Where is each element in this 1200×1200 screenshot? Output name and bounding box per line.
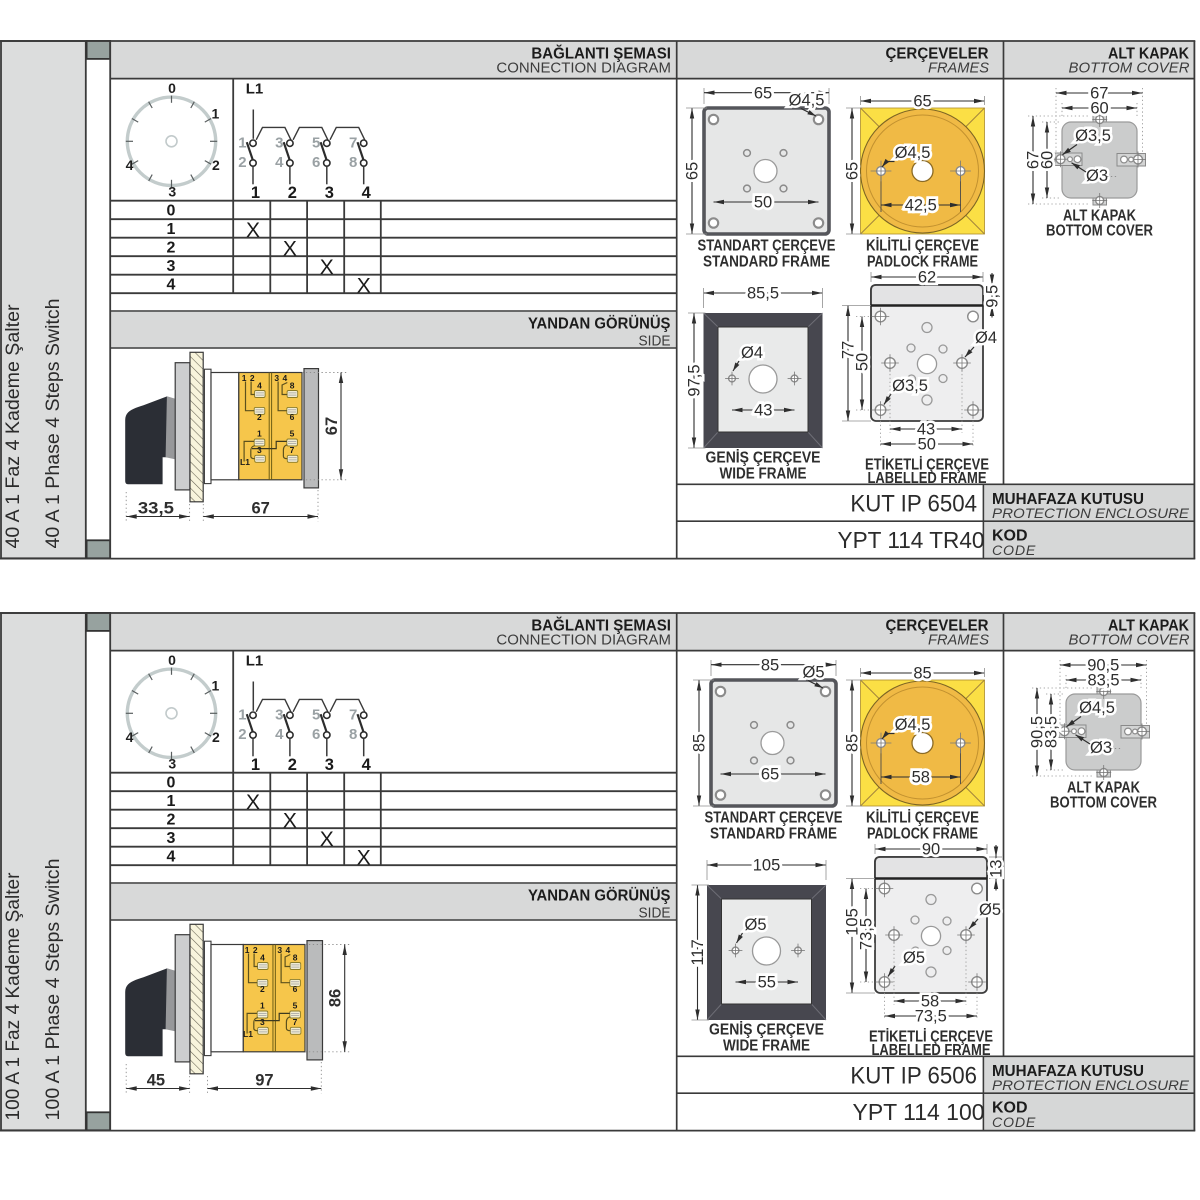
svg-text:83,5: 83,5 xyxy=(1043,716,1061,748)
svg-text:86: 86 xyxy=(327,989,345,1007)
svg-text:40 A 1 Faz 4 Kademe Şalter: 40 A 1 Faz 4 Kademe Şalter xyxy=(3,304,24,549)
svg-text:PROTECTION ENCLOSURE: PROTECTION ENCLOSURE xyxy=(992,1078,1190,1094)
svg-text:X: X xyxy=(283,238,297,261)
svg-text:97: 97 xyxy=(255,1072,273,1090)
svg-text:6: 6 xyxy=(312,726,320,743)
svg-text:Ø3: Ø3 xyxy=(1090,739,1112,757)
svg-text:FRAMES: FRAMES xyxy=(928,633,989,649)
svg-text:50: 50 xyxy=(854,353,872,371)
svg-text:3: 3 xyxy=(274,373,279,383)
svg-text:1: 1 xyxy=(260,1001,265,1011)
svg-text:105: 105 xyxy=(753,857,781,875)
svg-text:33,5: 33,5 xyxy=(138,500,174,518)
svg-text:3: 3 xyxy=(325,184,334,202)
svg-text:1: 1 xyxy=(242,373,247,383)
svg-text:1: 1 xyxy=(167,793,176,810)
svg-text:1: 1 xyxy=(257,429,262,439)
svg-text:3: 3 xyxy=(325,756,334,774)
svg-text:CODE: CODE xyxy=(992,1115,1036,1131)
svg-text:Ø5: Ø5 xyxy=(744,916,766,934)
svg-text:60: 60 xyxy=(1090,100,1108,118)
svg-text:4: 4 xyxy=(126,729,134,745)
svg-text:2: 2 xyxy=(288,184,297,202)
svg-text:5: 5 xyxy=(312,706,320,723)
svg-text:WIDE FRAME: WIDE FRAME xyxy=(723,1038,810,1055)
svg-text:50: 50 xyxy=(754,194,772,212)
svg-text:4: 4 xyxy=(362,184,372,202)
svg-text:BOTTOM COVER: BOTTOM COVER xyxy=(1069,633,1191,649)
svg-text:4: 4 xyxy=(283,373,288,383)
svg-text:STANDART ÇERÇEVE: STANDART ÇERÇEVE xyxy=(698,238,836,255)
svg-text:Ø4,5: Ø4,5 xyxy=(789,92,825,110)
svg-text:1: 1 xyxy=(251,184,260,202)
svg-text:CONNECTION DIAGRAM: CONNECTION DIAGRAM xyxy=(496,61,671,77)
svg-text:62: 62 xyxy=(918,269,936,287)
svg-text:5: 5 xyxy=(312,134,320,151)
svg-text:85: 85 xyxy=(691,734,709,752)
svg-text:2: 2 xyxy=(167,811,176,828)
svg-text:KUT IP 6506: KUT IP 6506 xyxy=(850,1063,977,1090)
svg-text:65: 65 xyxy=(913,93,931,111)
svg-text:YPT 114 100: YPT 114 100 xyxy=(853,1099,985,1125)
svg-text:2: 2 xyxy=(257,412,262,422)
svg-text:90: 90 xyxy=(922,841,940,859)
svg-text:7: 7 xyxy=(293,1017,298,1027)
svg-text:2: 2 xyxy=(212,729,220,745)
svg-text:PROTECTION ENCLOSURE: PROTECTION ENCLOSURE xyxy=(992,506,1190,522)
svg-text:7: 7 xyxy=(290,445,295,455)
svg-text:1: 1 xyxy=(238,134,246,151)
svg-text:0: 0 xyxy=(167,202,176,219)
svg-text:4: 4 xyxy=(275,726,284,743)
svg-text:4: 4 xyxy=(286,945,291,955)
svg-text:7: 7 xyxy=(349,706,357,723)
svg-text:85,5: 85,5 xyxy=(747,285,779,303)
svg-text:LABELLED FRAME: LABELLED FRAME xyxy=(872,1042,991,1059)
svg-text:3: 3 xyxy=(275,134,283,151)
svg-text:X: X xyxy=(357,275,371,298)
svg-text:L1: L1 xyxy=(243,1029,253,1039)
svg-text:GENİŞ ÇERÇEVE: GENİŞ ÇERÇEVE xyxy=(706,449,821,467)
svg-text:45: 45 xyxy=(147,1072,165,1090)
svg-text:X: X xyxy=(320,256,334,279)
svg-text:117: 117 xyxy=(689,939,707,965)
svg-text:X: X xyxy=(246,219,260,242)
svg-text:Ø4: Ø4 xyxy=(975,329,997,347)
svg-text:4: 4 xyxy=(167,848,176,865)
svg-text:Ø3,5: Ø3,5 xyxy=(1075,127,1111,145)
svg-text:3: 3 xyxy=(167,258,176,275)
svg-text:60: 60 xyxy=(1039,151,1057,169)
svg-text:85: 85 xyxy=(913,665,931,683)
svg-text:4: 4 xyxy=(167,276,176,293)
svg-text:73,5: 73,5 xyxy=(858,918,876,950)
svg-text:6: 6 xyxy=(293,984,298,994)
svg-text:2: 2 xyxy=(250,373,255,383)
svg-text:73,5: 73,5 xyxy=(915,1008,947,1026)
svg-text:4: 4 xyxy=(126,157,134,173)
svg-text:WIDE FRAME: WIDE FRAME xyxy=(720,466,807,483)
svg-text:1: 1 xyxy=(251,756,260,774)
svg-text:KİLİTLİ ÇERÇEVE: KİLİTLİ ÇERÇEVE xyxy=(866,237,979,255)
svg-text:CONNECTION DIAGRAM: CONNECTION DIAGRAM xyxy=(496,633,671,649)
svg-text:X: X xyxy=(320,828,334,851)
svg-text:1: 1 xyxy=(212,105,220,121)
svg-text:43: 43 xyxy=(754,402,772,420)
svg-text:85: 85 xyxy=(761,656,779,674)
svg-text:BOTTOM COVER: BOTTOM COVER xyxy=(1050,795,1157,812)
svg-text:97,5: 97,5 xyxy=(686,364,704,396)
svg-text:1: 1 xyxy=(167,221,176,238)
svg-text:2: 2 xyxy=(212,157,220,173)
svg-text:L1: L1 xyxy=(246,653,264,670)
svg-text:58: 58 xyxy=(912,769,930,787)
svg-text:4: 4 xyxy=(362,756,372,774)
svg-text:8: 8 xyxy=(290,380,295,390)
svg-text:65: 65 xyxy=(684,162,702,180)
svg-text:KİLİTLİ ÇERÇEVE: KİLİTLİ ÇERÇEVE xyxy=(866,809,979,827)
svg-text:CODE: CODE xyxy=(992,543,1036,559)
svg-text:2: 2 xyxy=(238,154,246,171)
svg-text:13: 13 xyxy=(988,860,1006,878)
svg-text:Ø3,5: Ø3,5 xyxy=(892,377,928,395)
svg-text:85: 85 xyxy=(844,734,862,752)
svg-text:STANDARD FRAME: STANDARD FRAME xyxy=(703,254,830,271)
svg-text:1: 1 xyxy=(245,945,250,955)
svg-text:0: 0 xyxy=(168,652,176,668)
svg-text:0: 0 xyxy=(168,80,176,96)
svg-text:Ø5: Ø5 xyxy=(802,664,824,682)
svg-text:2: 2 xyxy=(167,239,176,256)
svg-text:65: 65 xyxy=(754,84,772,102)
svg-text:Ø5: Ø5 xyxy=(903,949,925,967)
svg-text:2: 2 xyxy=(260,984,265,994)
svg-text:8: 8 xyxy=(349,154,357,171)
svg-text:LABELLED FRAME: LABELLED FRAME xyxy=(868,470,987,487)
svg-text:67: 67 xyxy=(323,417,341,435)
svg-text:5: 5 xyxy=(293,1001,298,1011)
svg-text:3: 3 xyxy=(167,830,176,847)
svg-text:YANDAN GÖRÜNÜŞ: YANDAN GÖRÜNÜŞ xyxy=(528,887,671,904)
svg-text:4: 4 xyxy=(257,380,262,390)
svg-text:2: 2 xyxy=(238,726,246,743)
svg-text:YPT 114 TR40: YPT 114 TR40 xyxy=(838,527,985,553)
svg-text:Ø4,5: Ø4,5 xyxy=(1079,699,1115,717)
svg-text:6: 6 xyxy=(290,412,295,422)
svg-text:SIDE: SIDE xyxy=(639,333,671,349)
svg-text:3: 3 xyxy=(277,945,282,955)
svg-text:GENİŞ ÇERÇEVE: GENİŞ ÇERÇEVE xyxy=(709,1021,824,1039)
svg-text:8: 8 xyxy=(293,952,298,962)
svg-text:3: 3 xyxy=(260,1017,265,1027)
svg-text:L1: L1 xyxy=(246,81,264,98)
svg-text:Ø4: Ø4 xyxy=(741,344,763,362)
svg-text:Ø4,5: Ø4,5 xyxy=(895,144,931,162)
svg-text:67: 67 xyxy=(251,500,269,518)
svg-text:YANDAN GÖRÜNÜŞ: YANDAN GÖRÜNÜŞ xyxy=(528,315,671,332)
svg-text:42,5: 42,5 xyxy=(905,197,937,215)
svg-text:L1: L1 xyxy=(240,457,250,467)
svg-text:BOTTOM COVER: BOTTOM COVER xyxy=(1046,223,1153,240)
svg-text:6: 6 xyxy=(312,154,320,171)
svg-text:83,5: 83,5 xyxy=(1087,672,1119,690)
svg-text:65: 65 xyxy=(761,766,779,784)
svg-text:3: 3 xyxy=(275,706,283,723)
svg-text:STANDARD FRAME: STANDARD FRAME xyxy=(710,826,837,843)
svg-text:Ø4,5: Ø4,5 xyxy=(895,716,931,734)
svg-text:KUT IP 6504: KUT IP 6504 xyxy=(850,491,977,518)
svg-text:9,5: 9,5 xyxy=(984,285,1002,308)
svg-text:55: 55 xyxy=(758,974,776,992)
svg-text:2: 2 xyxy=(253,945,258,955)
svg-text:3: 3 xyxy=(168,755,176,771)
svg-text:1: 1 xyxy=(212,677,220,693)
svg-text:3: 3 xyxy=(257,445,262,455)
svg-text:BOTTOM COVER: BOTTOM COVER xyxy=(1069,61,1191,77)
svg-text:100 A 1 Faz 4 Kademe Şalter: 100 A 1 Faz 4 Kademe Şalter xyxy=(3,872,24,1121)
svg-text:0: 0 xyxy=(167,774,176,791)
svg-text:2: 2 xyxy=(288,756,297,774)
svg-text:X: X xyxy=(246,791,260,814)
svg-text:50: 50 xyxy=(918,436,936,454)
svg-text:65: 65 xyxy=(844,162,862,180)
svg-text:Ø5: Ø5 xyxy=(979,901,1001,919)
svg-text:STANDART ÇERÇEVE: STANDART ÇERÇEVE xyxy=(705,810,843,827)
svg-text:8: 8 xyxy=(349,726,357,743)
svg-text:5: 5 xyxy=(290,429,295,439)
svg-text:7: 7 xyxy=(349,134,357,151)
svg-text:FRAMES: FRAMES xyxy=(928,61,989,77)
svg-text:3: 3 xyxy=(168,183,176,199)
svg-text:4: 4 xyxy=(275,154,284,171)
svg-text:X: X xyxy=(357,847,371,870)
svg-text:100 A 1 Phase 4 Steps Switch: 100 A 1 Phase 4 Steps Switch xyxy=(43,859,64,1121)
svg-text:1: 1 xyxy=(238,706,246,723)
svg-text:4: 4 xyxy=(260,952,265,962)
svg-text:Ø3: Ø3 xyxy=(1086,167,1108,185)
svg-text:SIDE: SIDE xyxy=(639,905,671,921)
svg-text:40 A 1 Phase 4 Steps Switch: 40 A 1 Phase 4 Steps Switch xyxy=(43,299,64,549)
svg-text:X: X xyxy=(283,810,297,833)
